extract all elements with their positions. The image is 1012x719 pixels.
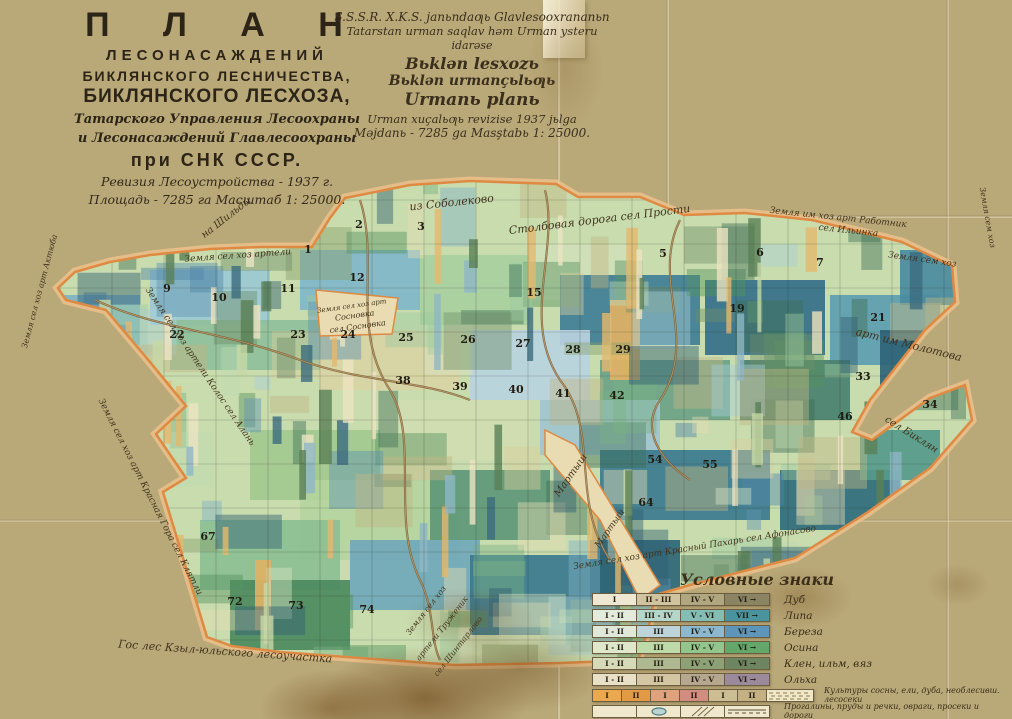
svg-text:26: 26 xyxy=(460,333,476,346)
svg-text:74: 74 xyxy=(359,603,375,616)
svg-text:6: 6 xyxy=(756,246,764,259)
legend-culture-cell: I xyxy=(709,690,738,701)
svg-text:29: 29 xyxy=(615,343,630,356)
tatar-revision-line: Urman xuçalьƣь revizise 1937 jьlga xyxy=(322,112,622,126)
legend-row: I - IIIIIIV - VVI →Береза xyxy=(592,625,1010,638)
legend-bonitet-cell: I - II xyxy=(593,674,637,685)
svg-text:21: 21 xyxy=(870,311,885,324)
legend-culture-cell: II xyxy=(622,690,651,701)
legend-row: I - IIIIIIV - VVI →Клен, ильм, вяз xyxy=(592,657,1010,670)
scanned-map-page: { "title_block": { "lines": [ "П Л А Н",… xyxy=(0,0,1012,719)
svg-text:23: 23 xyxy=(290,328,305,341)
legend-species-label: Дуб xyxy=(784,594,805,606)
legend-bonitet-cell: I - II xyxy=(593,642,637,653)
svg-text:42: 42 xyxy=(609,389,624,402)
legend-bonitet-cell: V - VI xyxy=(681,610,725,621)
legend-bonitet-cell: I - II xyxy=(593,626,637,637)
svg-text:10: 10 xyxy=(211,291,227,304)
tatar-line-2: Tatarstan urman saqlav həm Urman ysteru xyxy=(322,24,622,38)
legend-bonitet-cell: I - II xyxy=(593,658,637,669)
svg-text:64: 64 xyxy=(638,496,654,509)
area-scale-line: Площадь - 7285 га Масштаб 1: 25000. xyxy=(52,192,382,207)
tatar-line-1: S.S.S.R. X.K.S. janьndaƣь Glavlesooxrana… xyxy=(322,10,622,24)
svg-text:12: 12 xyxy=(349,271,364,284)
legend-row: I - IIIIIIV - VVI →Осина xyxy=(592,641,1010,654)
legend-culture-cell: I xyxy=(593,690,622,701)
svg-text:34: 34 xyxy=(922,398,938,411)
legend-bonitet-cell: III xyxy=(637,626,681,637)
tatar-line-3: idarəse xyxy=(322,39,622,52)
legend-bonitet-cell: VI → xyxy=(725,594,769,605)
legend-bonitet-cell: II - III xyxy=(637,594,681,605)
legend-symbol-pond xyxy=(637,706,681,717)
legend-symbol-blank xyxy=(593,706,637,717)
svg-text:Земля сел хоз арт Актюба: Земля сел хоз арт Актюба xyxy=(20,233,59,349)
svg-text:5: 5 xyxy=(659,247,667,260)
legend-bonitet-cell: III xyxy=(637,674,681,685)
legend-bonitet-cell: I - II xyxy=(593,610,637,621)
legend-bonitet-cell: IV - V xyxy=(681,626,725,637)
revision-line: Ревизия Лесоустройства - 1937 г. xyxy=(52,174,382,189)
svg-text:Земля сем хоз: Земля сем хоз xyxy=(978,187,998,249)
svg-text:73: 73 xyxy=(288,599,303,612)
svg-text:39: 39 xyxy=(452,380,467,393)
legend-bonitet-cell: VI → xyxy=(725,674,769,685)
tatar-line-6: Urmanь planь xyxy=(322,90,622,110)
legend-row: I - IIIII - IVV - VIVII →Липа xyxy=(592,609,1010,622)
legend-species-label: Береза xyxy=(784,626,823,638)
tatar-area-scale-line: Məjdanь - 7285 ga Masştabь 1: 25000. xyxy=(322,126,622,140)
svg-text:40: 40 xyxy=(508,383,524,396)
legend-terrain-label: Прогалины, пруды и речки, овраги, просек… xyxy=(784,703,994,719)
svg-text:54: 54 xyxy=(647,453,663,466)
svg-text:72: 72 xyxy=(227,595,242,608)
legend-culture-cell: II xyxy=(680,690,709,701)
legend-bonitet-cell: III - IV xyxy=(637,610,681,621)
svg-text:15: 15 xyxy=(526,286,541,299)
legend-bonitet-cell: IV - V xyxy=(681,594,725,605)
legend-culture-cell: I xyxy=(651,690,680,701)
svg-text:28: 28 xyxy=(565,343,581,356)
legend-bonitet-cell: VI → xyxy=(725,642,769,653)
legend-bonitet-cell: IV - V xyxy=(681,642,725,653)
svg-text:67: 67 xyxy=(200,530,215,543)
legend-bonitet-cell: III xyxy=(637,658,681,669)
legend-bonitet-cell: VI → xyxy=(725,658,769,669)
legend-row: III - IIIIV - VVI →Дуб xyxy=(592,593,1010,606)
svg-text:2: 2 xyxy=(355,218,363,231)
svg-text:19: 19 xyxy=(729,302,744,315)
legend-row: IIIIIIIIIКультуры сосны, ели, дуба, необ… xyxy=(592,689,1010,702)
legend-row: I - IIIIIIV - VVI →Ольха xyxy=(592,673,1010,686)
legend-bonitet-cell: III xyxy=(637,642,681,653)
svg-text:3: 3 xyxy=(417,220,425,233)
svg-text:46: 46 xyxy=(837,410,853,423)
tatar-title-block: S.S.S.R. X.K.S. janьndaƣь Glavlesooxrana… xyxy=(322,10,622,140)
legend-species-label: Осина xyxy=(784,642,818,654)
svg-text:55: 55 xyxy=(702,458,717,471)
title-line-7: при СНК СССР. xyxy=(52,150,382,171)
svg-text:27: 27 xyxy=(515,337,530,350)
legend-bonitet-cell: VI → xyxy=(725,626,769,637)
svg-text:9: 9 xyxy=(163,282,171,295)
legend: Условные знаки III - IIIIV - VVI →ДубI -… xyxy=(592,570,1010,719)
legend-species-label: Ольха xyxy=(784,674,817,686)
tatar-line-4: Bьklən lesxozь xyxy=(322,54,622,73)
svg-text:25: 25 xyxy=(398,331,413,344)
legend-culture-cell: II xyxy=(738,690,767,701)
legend-species-label: Липа xyxy=(784,610,813,622)
legend-rows: III - IIIIV - VVI →ДубI - IIIII - IVV - … xyxy=(592,593,1010,718)
legend-title: Условные знаки xyxy=(592,570,922,589)
legend-bonitet-cell: VII → xyxy=(725,610,769,621)
legend-species-label: Клен, ильм, вяз xyxy=(784,658,872,670)
legend-bonitet-cell: I xyxy=(593,594,637,605)
legend-symbol-road xyxy=(725,706,769,717)
svg-text:1: 1 xyxy=(304,243,312,256)
legend-row: Прогалины, пруды и речки, овраги, просек… xyxy=(592,705,1010,718)
svg-text:7: 7 xyxy=(816,256,824,269)
tatar-line-5: Bьklən urmançьlьƣь xyxy=(322,73,622,89)
svg-text:11: 11 xyxy=(280,282,295,295)
legend-symbol-ravine xyxy=(681,706,725,717)
legend-felling-swatch xyxy=(767,690,813,701)
legend-bonitet-cell: IV - V xyxy=(681,674,725,685)
legend-bonitet-cell: IV - V xyxy=(681,658,725,669)
svg-text:33: 33 xyxy=(855,370,870,383)
svg-text:41: 41 xyxy=(555,387,570,400)
svg-text:38: 38 xyxy=(395,374,411,387)
